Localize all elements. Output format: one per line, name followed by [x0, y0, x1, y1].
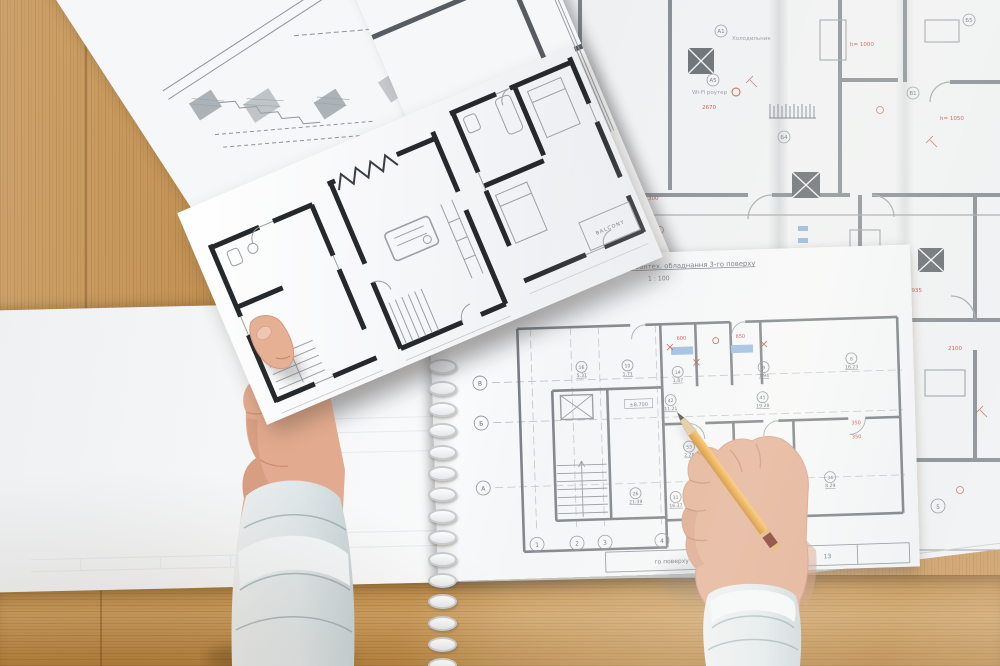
svg-text:9: 9 — [762, 365, 765, 371]
svg-text:В: В — [478, 381, 482, 388]
svg-text:650: 650 — [736, 334, 746, 340]
svg-text:14: 14 — [675, 370, 681, 376]
svg-text:2100: 2100 — [948, 346, 962, 352]
grid-tag: Б5 — [965, 18, 973, 24]
svg-text:10: 10 — [624, 363, 630, 369]
svg-text:h= 1000: h= 1000 — [850, 42, 874, 48]
stair-core — [554, 394, 608, 518]
architect-desk-scene: Wi-Fi роутер 2670 Холодильник А1 А5 Б4 В… — [0, 0, 1000, 666]
svg-text:2: 2 — [575, 541, 579, 548]
wood-plank-seam — [100, 577, 102, 666]
grid-tag: В1 — [909, 91, 916, 97]
grid-tag: Б4 — [780, 135, 788, 141]
stair-section-sawtooth — [334, 152, 398, 190]
svg-text:1.71: 1.71 — [623, 371, 633, 377]
left-thumb — [230, 300, 320, 390]
grid-tag: А5 — [709, 78, 717, 84]
svg-text:8: 8 — [850, 356, 853, 362]
svg-text:h= 1050: h= 1050 — [940, 116, 964, 122]
svg-text:Б: Б — [479, 420, 483, 427]
svg-text:300: 300 — [648, 196, 659, 202]
svg-text:350: 350 — [852, 434, 862, 440]
svg-text:16.23: 16.23 — [845, 364, 858, 370]
balcony-label: BALCONY — [595, 219, 626, 237]
svg-text:5.31: 5.31 — [577, 373, 587, 379]
right-arm — [630, 380, 850, 666]
svg-text:1: 1 — [535, 542, 539, 549]
axis-tag-5: 5 — [936, 504, 940, 511]
svg-text:А: А — [481, 485, 486, 492]
wifi-dimension: 2670 — [702, 105, 716, 111]
svg-text:3: 3 — [603, 540, 607, 547]
svg-text:7.94: 7.94 — [759, 373, 769, 379]
svg-text:600: 600 — [677, 336, 687, 342]
spiral-binding — [428, 356, 457, 666]
fridge-label: Холодильник — [732, 36, 771, 42]
svg-text:350: 350 — [851, 420, 861, 426]
grid-tag: А1 — [717, 29, 724, 35]
wifi-router-label: Wi-Fi роутер — [692, 90, 728, 96]
svg-text:16: 16 — [579, 365, 585, 371]
